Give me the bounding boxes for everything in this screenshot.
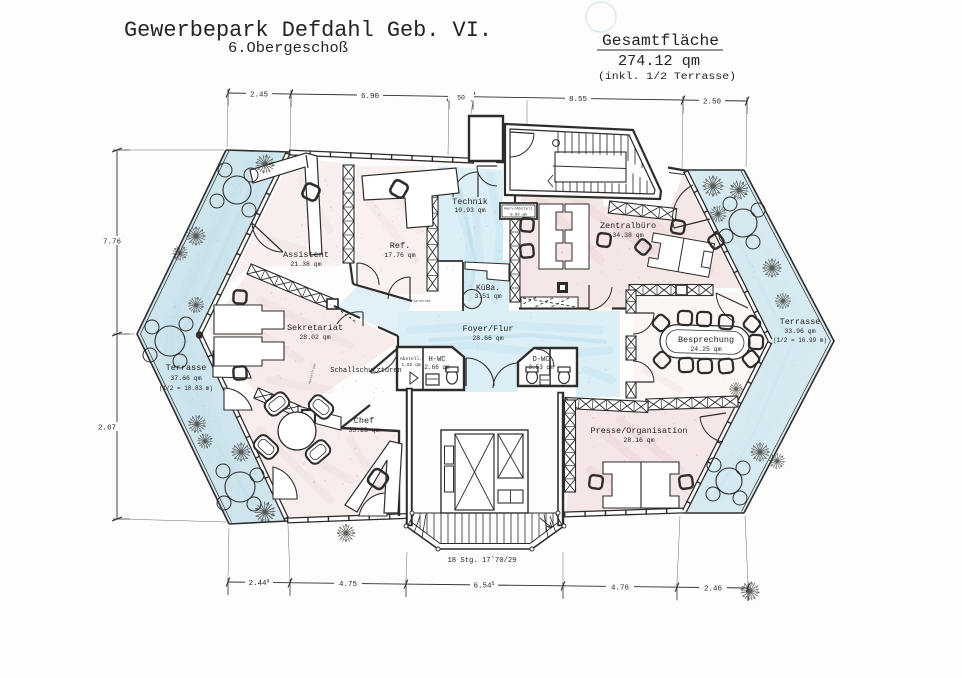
svg-text:28.66 qm: 28.66 qm (472, 335, 503, 342)
svg-text:8.55: 8.55 (569, 96, 588, 104)
svg-text:Abstell.: Abstell. (400, 356, 422, 362)
svg-text:2.67: 2.67 (98, 425, 116, 433)
svg-text:34.38 qm: 34.38 qm (612, 232, 643, 239)
svg-text:2.449: 2.449 (248, 579, 269, 589)
svg-text:4.76: 4.76 (611, 584, 630, 592)
svg-text:50: 50 (457, 94, 465, 101)
svg-text:Technik: Technik (452, 197, 488, 207)
svg-text:(inkl. 1/2 Terrasse): (inkl. 1/2 Terrasse) (598, 71, 736, 83)
svg-text:2.66 qm: 2.66 qm (424, 364, 450, 371)
svg-text:Zentralbüro: Zentralbüro (600, 221, 656, 231)
svg-text:Terrasse: Terrasse (780, 317, 821, 327)
svg-text:3.53 qm: 3.53 qm (528, 364, 554, 371)
svg-text:28.02 qm: 28.02 qm (299, 334, 330, 341)
svg-text:3.51 qm: 3.51 qm (474, 293, 501, 300)
svg-text:Chef: Chef (354, 416, 374, 426)
svg-text:17.76 qm: 17.76 qm (384, 252, 415, 259)
svg-text:33.96 qm: 33.96 qm (784, 328, 815, 335)
svg-text:4.75: 4.75 (339, 581, 358, 589)
svg-text:D-WC: D-WC (533, 356, 550, 364)
svg-text:Gesamtfläche: Gesamtfläche (602, 32, 719, 50)
svg-text:(1/2 = 18.83 m): (1/2 = 18.83 m) (159, 385, 213, 392)
svg-text:2.46: 2.46 (704, 585, 723, 593)
svg-text:Garderobe: Garderobe (413, 299, 430, 303)
svg-text:10.93 qm: 10.93 qm (454, 207, 485, 214)
svg-text:21.38 qm: 21.38 qm (290, 261, 321, 268)
svg-text:24.25 qm: 24.25 qm (690, 346, 721, 353)
svg-text:Schallschutztüren: Schallschutztüren (330, 367, 401, 375)
svg-text:7.76: 7.76 (103, 239, 122, 247)
svg-text:2.45: 2.45 (250, 91, 269, 99)
svg-text:Foyer/Flur: Foyer/Flur (462, 324, 513, 334)
svg-text:Herv/Abstell: Herv/Abstell (504, 207, 533, 212)
svg-text:Ref.: Ref. (390, 241, 410, 251)
svg-text:28.16 qm: 28.16 qm (623, 437, 654, 444)
svg-text:H-WC: H-WC (429, 356, 446, 364)
svg-text:Presse/Organisation: Presse/Organisation (591, 426, 688, 436)
svg-text:33.25 qm: 33.25 qm (348, 427, 379, 434)
svg-text:Assistent: Assistent (283, 250, 329, 260)
svg-text:Terrasse: Terrasse (166, 363, 207, 373)
svg-text:Besprechung: Besprechung (678, 335, 734, 345)
svg-text:0.93 qm: 0.93 qm (510, 214, 527, 218)
svg-text:6.545: 6.545 (473, 581, 494, 591)
svg-text:1.92 qm: 1.92 qm (401, 362, 421, 368)
svg-text:KüBa.: KüBa. (476, 284, 500, 293)
svg-text:18 Stg. 17ˆ70/29: 18 Stg. 17ˆ70/29 (447, 557, 516, 565)
svg-text:(1/2 = 16.99 m): (1/2 = 16.99 m) (773, 337, 827, 344)
svg-text:37.66 qm: 37.66 qm (170, 375, 201, 382)
svg-text:2.50: 2.50 (703, 98, 722, 106)
svg-text:274.12 qm: 274.12 qm (618, 53, 700, 70)
svg-text:Sekretariat: Sekretariat (287, 323, 343, 333)
svg-text:6.Obergeschoß: 6.Obergeschoß (228, 40, 348, 57)
svg-text:6.90: 6.90 (361, 93, 380, 101)
